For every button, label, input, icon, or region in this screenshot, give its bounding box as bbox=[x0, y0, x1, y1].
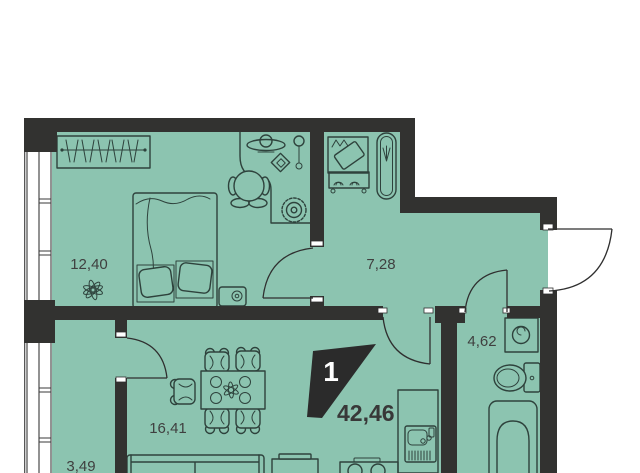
dining-chair bbox=[205, 349, 229, 373]
window-bedroom bbox=[24, 152, 52, 306]
apartment-floor bbox=[24, 118, 557, 473]
bedroom-area-label: 12,40 bbox=[70, 256, 108, 273]
window-balcony bbox=[24, 343, 52, 473]
door-entrance bbox=[548, 229, 612, 291]
dining-chair bbox=[171, 379, 196, 405]
bathroom-area-label: 4,62 bbox=[467, 333, 496, 350]
dining-table bbox=[201, 371, 265, 409]
hallway-area-label: 7,28 bbox=[366, 256, 395, 273]
floor-plan: 1 42,46 12,40 7,28 4,62 16,41 3,49 bbox=[0, 0, 640, 473]
entrance-opening bbox=[548, 230, 557, 290]
rooms-count-number: 1 bbox=[323, 356, 339, 387]
total-area-label: 42,46 bbox=[337, 400, 395, 426]
balcony-area-label: 3,49 bbox=[66, 458, 95, 473]
dining-chair bbox=[236, 348, 260, 372]
living-kitchen-area-label: 16,41 bbox=[149, 420, 187, 437]
